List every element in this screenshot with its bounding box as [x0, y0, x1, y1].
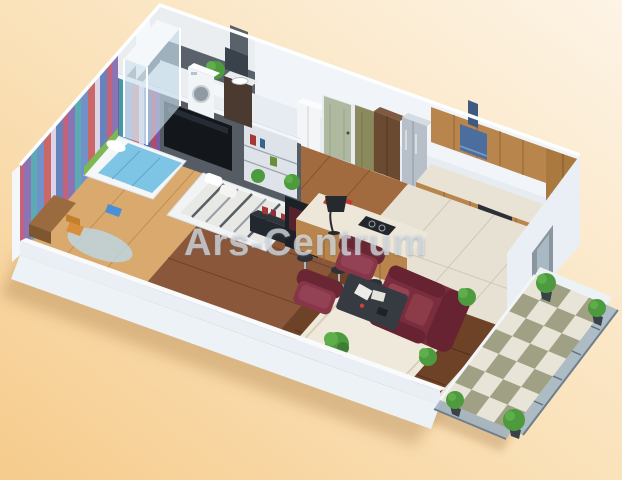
plant-bush: [251, 169, 265, 183]
plant-bush: [458, 288, 476, 306]
door-interior: [322, 94, 353, 165]
plant-bush: [419, 348, 437, 366]
plant-bush: [284, 174, 300, 190]
floorplan-render: Ars-Centrum: [0, 0, 622, 480]
floorplan-scene: [0, 0, 622, 480]
